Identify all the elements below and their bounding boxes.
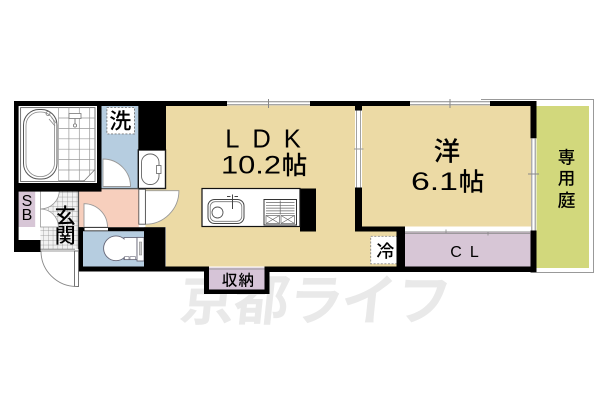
svg-text:B: B xyxy=(22,207,33,224)
svg-text:LDK: LDK xyxy=(225,126,314,154)
svg-text:6.1: 6.1 xyxy=(411,168,458,196)
svg-text:10.2: 10.2 xyxy=(221,152,281,180)
svg-text:CL: CL xyxy=(450,244,486,261)
